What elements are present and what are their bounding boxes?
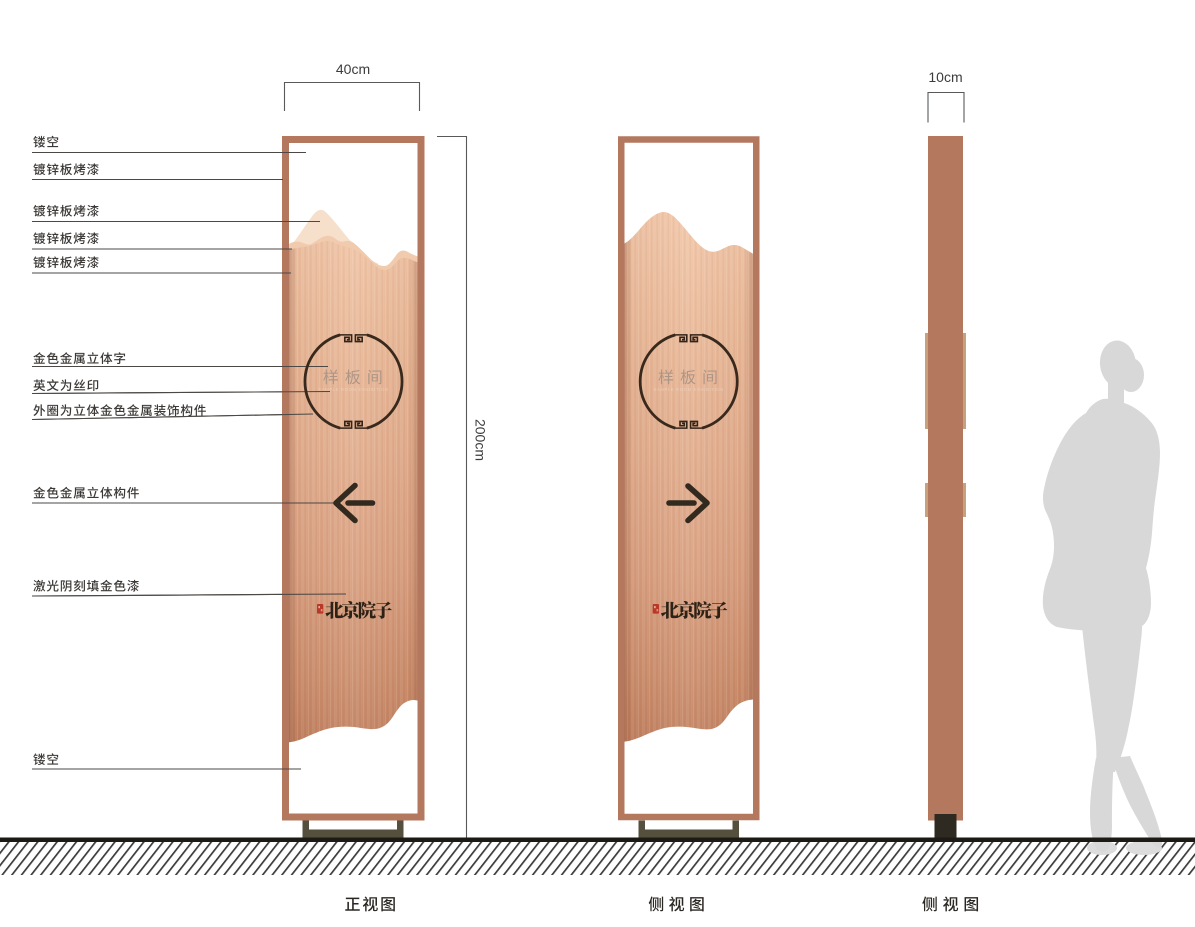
svg-text:10cm: 10cm [928,69,962,85]
svg-text:200cm: 200cm [473,419,489,461]
svg-text:40cm: 40cm [336,61,370,77]
svg-text:SAMPLE ROOM EXHIBITION: SAMPLE ROOM EXHIBITION [318,387,388,392]
svg-text:SAMPLE ROOM EXHIBITION: SAMPLE ROOM EXHIBITION [654,387,724,392]
